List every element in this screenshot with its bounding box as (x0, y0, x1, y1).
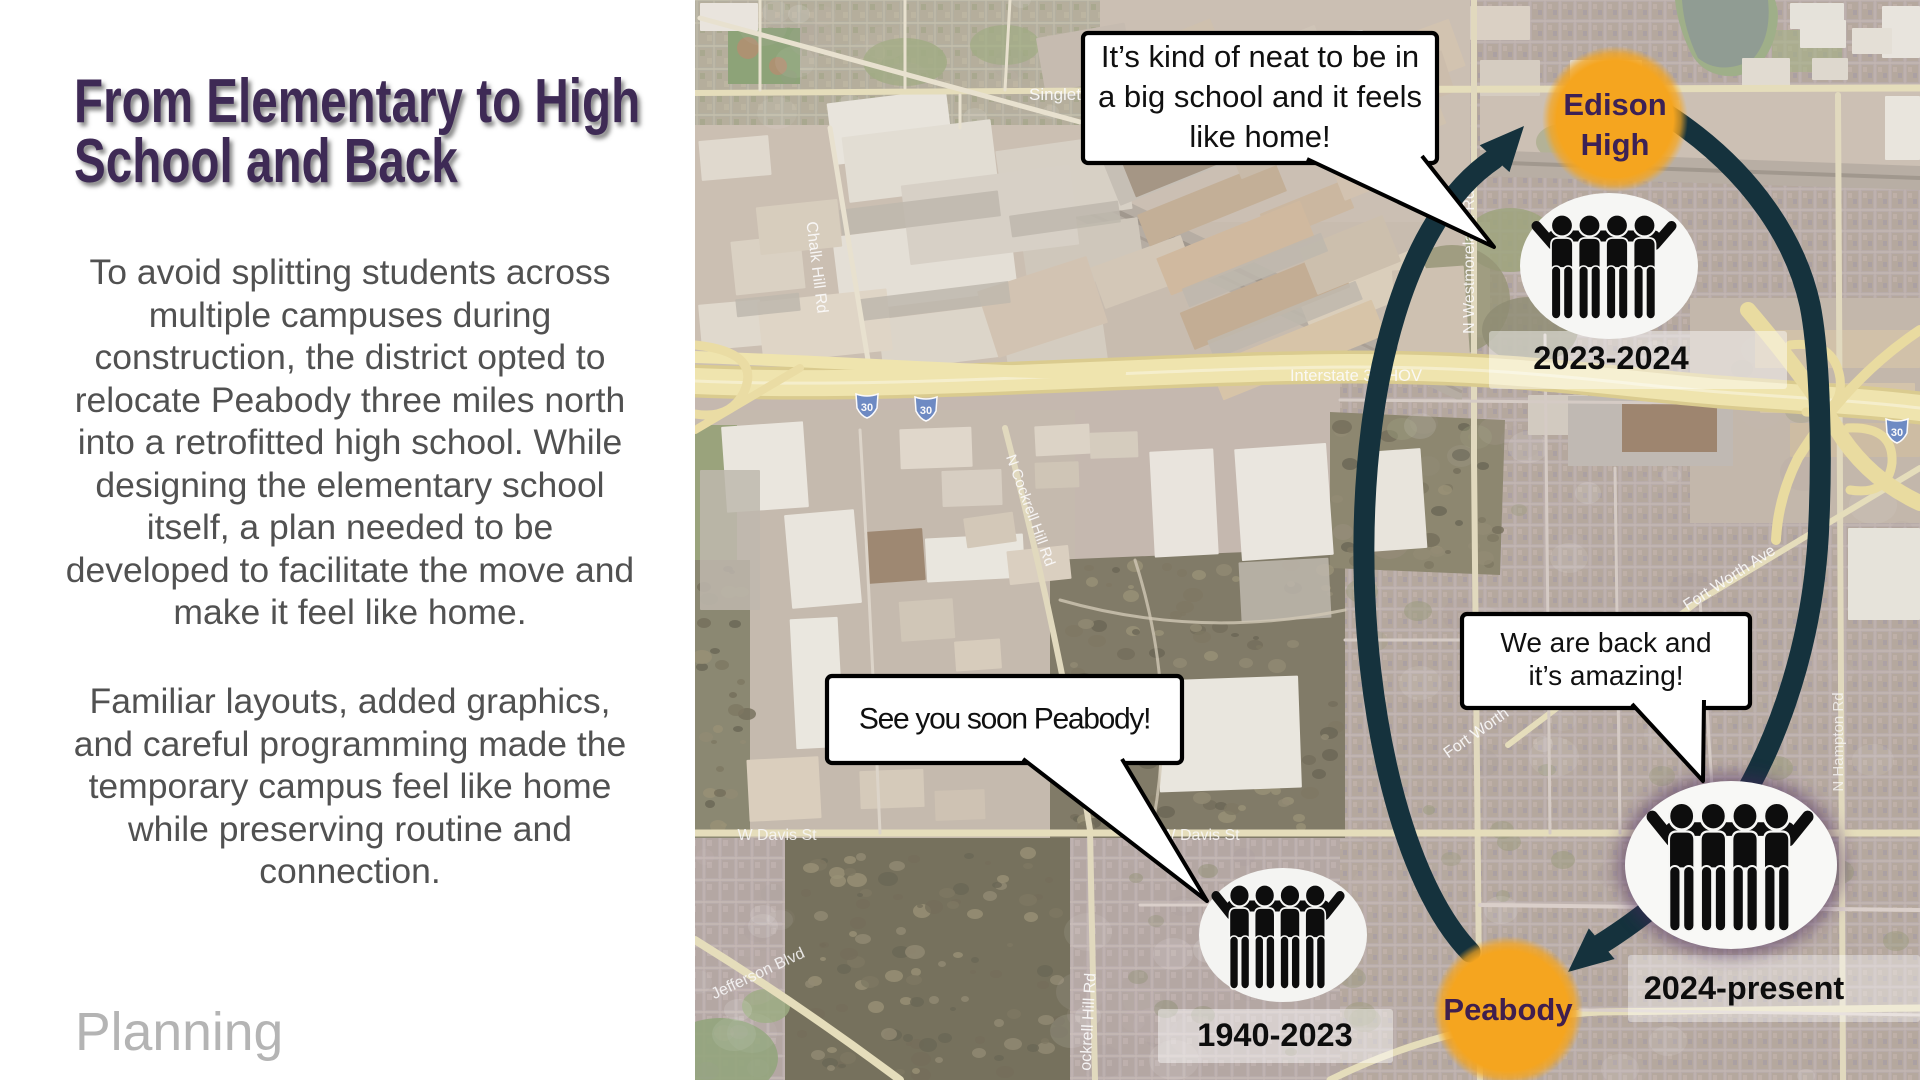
svg-text:2024-present: 2024-present (1644, 970, 1845, 1006)
svg-text:1940-2023: 1940-2023 (1197, 1017, 1352, 1053)
svg-text:2023-2024: 2023-2024 (1533, 340, 1688, 376)
svg-text:Edison: Edison (1563, 87, 1666, 122)
svg-text:We are back and: We are back and (1500, 627, 1711, 658)
svg-text:Peabody: Peabody (1443, 992, 1573, 1027)
svg-text:it’s amazing!: it’s amazing! (1528, 660, 1683, 691)
svg-text:It’s kind of neat to be in: It’s kind of neat to be in (1101, 39, 1419, 74)
svg-text:High: High (1581, 127, 1650, 162)
svg-text:a big school and it feels: a big school and it feels (1098, 79, 1422, 114)
svg-text:See you soon Peabody!: See you soon Peabody! (859, 702, 1150, 735)
svg-text:like home!: like home! (1189, 119, 1330, 154)
